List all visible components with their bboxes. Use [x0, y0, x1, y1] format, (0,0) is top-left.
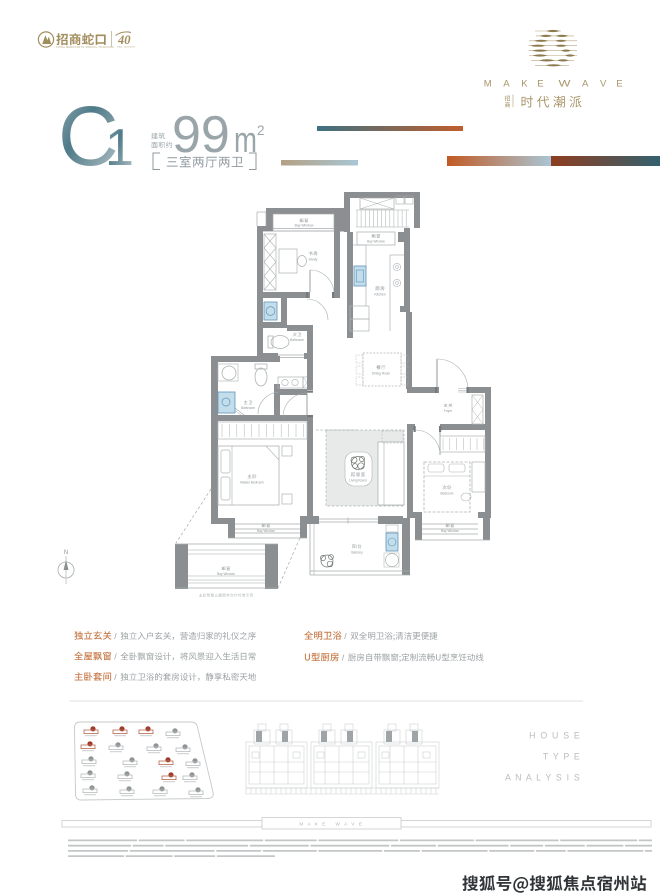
svg-text:Living Room: Living Room — [349, 479, 367, 483]
svg-text:Bathroom: Bathroom — [290, 338, 304, 342]
svg-text:Master Bedroom: Master Bedroom — [240, 481, 264, 485]
svg-text:40: 40 — [117, 33, 131, 47]
svg-text:99: 99 — [172, 106, 230, 164]
svg-text:Bay Window: Bay Window — [217, 572, 235, 576]
svg-text:A: A — [582, 79, 589, 90]
svg-text:/: / — [114, 672, 117, 682]
svg-text:M A K E W A V E: M A K E W A V E — [299, 822, 363, 827]
svg-text:Bay Window: Bay Window — [257, 529, 275, 533]
svg-text:m: m — [234, 119, 257, 160]
svg-text:1984 - 2024 40TH: 1984 - 2024 40TH — [117, 47, 135, 49]
svg-text:K: K — [521, 79, 528, 90]
svg-text:N: N — [64, 550, 68, 556]
svg-text:A N A L Y S I S: A N A L Y S I S — [505, 773, 581, 783]
svg-text:E: E — [616, 79, 622, 90]
svg-text:W: W — [559, 79, 571, 90]
svg-text:M: M — [484, 79, 492, 90]
svg-text:Bedroom: Bedroom — [441, 492, 454, 496]
svg-text:Dining Room: Dining Room — [372, 372, 391, 376]
svg-text:T Y P E: T Y P E — [543, 752, 581, 762]
svg-text:H O U S E: H O U S E — [529, 731, 581, 741]
svg-text:Foyer: Foyer — [444, 409, 453, 413]
svg-text:A: A — [503, 79, 510, 90]
svg-text:Kitchen: Kitchen — [374, 293, 385, 297]
svg-text:/: / — [114, 631, 117, 641]
svg-text:Study: Study — [309, 258, 318, 262]
svg-text:CHINA MERCHANTS SHEKOU HOLDING: CHINA MERCHANTS SHEKOU HOLDINGS — [56, 46, 114, 49]
svg-text:E: E — [537, 79, 543, 90]
svg-text:1: 1 — [105, 119, 134, 177]
svg-text:Bathroom: Bathroom — [241, 406, 255, 410]
svg-text:V: V — [600, 79, 607, 90]
svg-text:Balcony: Balcony — [351, 551, 363, 555]
svg-text:/: / — [114, 652, 117, 662]
svg-text:Bay Window: Bay Window — [441, 529, 459, 533]
svg-text:2: 2 — [257, 123, 265, 138]
svg-text:/: / — [342, 653, 345, 663]
svg-text:Bay Window: Bay Window — [367, 240, 385, 244]
svg-text:/: / — [344, 631, 347, 641]
svg-text:Bay Window: Bay Window — [295, 224, 314, 228]
